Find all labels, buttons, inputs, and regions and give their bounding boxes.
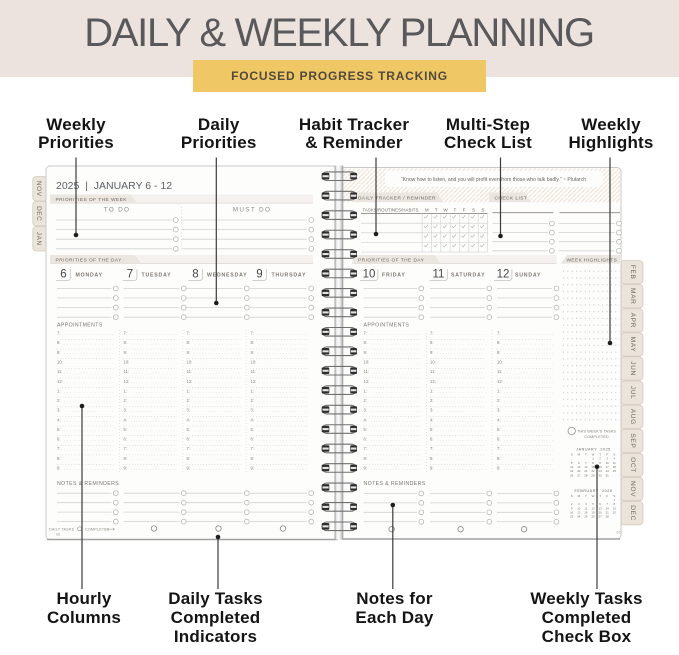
svg-text:DEC: DEC: [629, 505, 636, 521]
svg-text:2:: 2:: [251, 398, 255, 403]
svg-text:24: 24: [577, 515, 581, 519]
svg-text:3:: 3:: [124, 408, 128, 413]
svg-text:8:: 8:: [430, 456, 434, 461]
svg-text:1:: 1:: [57, 388, 61, 393]
svg-text:7:: 7:: [57, 446, 61, 451]
svg-text:9:: 9:: [251, 465, 255, 470]
svg-text:NOV: NOV: [35, 181, 42, 197]
svg-text:8:: 8:: [497, 456, 501, 461]
svg-text:AUG: AUG: [629, 409, 636, 425]
svg-text:12:: 12:: [57, 379, 63, 384]
svg-text:APPOINTMENTS: APPOINTMENTS: [57, 323, 103, 329]
svg-text:10:: 10:: [124, 359, 130, 364]
svg-text:4:: 4:: [497, 417, 501, 422]
svg-text:SEP: SEP: [629, 433, 636, 448]
svg-text:8: 8: [192, 269, 198, 281]
svg-text:27: 27: [598, 515, 602, 519]
svg-text:25: 25: [584, 515, 588, 519]
svg-text:11: 11: [433, 269, 445, 281]
svg-text:9:: 9:: [124, 465, 128, 470]
svg-text:3:: 3:: [497, 408, 501, 413]
svg-text:DEC: DEC: [35, 206, 42, 221]
svg-text:5:: 5:: [57, 427, 61, 432]
svg-text:7:: 7:: [251, 331, 255, 336]
svg-text:6: 6: [60, 269, 66, 281]
svg-text:3:: 3:: [364, 408, 368, 413]
svg-text:TASKS/ROUTINES/HABITS: TASKS/ROUTINES/HABITS: [363, 208, 419, 213]
svg-text:4:: 4:: [364, 417, 368, 422]
svg-text:JUL: JUL: [629, 386, 636, 400]
svg-text:4:: 4:: [187, 417, 191, 422]
svg-text:6:: 6:: [497, 437, 501, 442]
svg-text:25: 25: [613, 469, 617, 473]
svg-text:2:: 2:: [124, 398, 128, 403]
svg-text:8:: 8:: [364, 456, 368, 461]
svg-text:7:: 7:: [187, 446, 191, 451]
svg-text:12:: 12:: [364, 379, 370, 384]
svg-text:TUESDAY: TUESDAY: [142, 273, 172, 279]
svg-text:28: 28: [584, 473, 588, 477]
svg-text:1:: 1:: [364, 388, 368, 393]
svg-text:7:: 7:: [364, 446, 368, 451]
svg-text:8:: 8:: [57, 340, 61, 345]
svg-text:7:: 7:: [57, 331, 61, 336]
svg-text:9:: 9:: [497, 350, 501, 355]
svg-text:4:: 4:: [57, 417, 61, 422]
svg-text:66: 66: [56, 532, 60, 536]
svg-text:OCT: OCT: [629, 457, 636, 473]
svg-text:W: W: [443, 208, 448, 213]
svg-text:PRIORITIES OF THE DAY: PRIORITIES OF THE DAY: [56, 258, 123, 264]
svg-text:12:: 12:: [497, 379, 503, 384]
svg-text:5:: 5:: [124, 427, 128, 432]
svg-text:9:: 9:: [497, 465, 501, 470]
svg-text:7:: 7:: [430, 446, 434, 451]
svg-text:7:: 7:: [430, 331, 434, 336]
svg-text:F: F: [463, 208, 466, 213]
svg-text:SATURDAY: SATURDAY: [451, 273, 485, 279]
svg-text:8:: 8:: [430, 340, 434, 345]
svg-text:2:: 2:: [430, 398, 434, 403]
svg-text:8:: 8:: [124, 456, 128, 461]
svg-text:6:: 6:: [251, 437, 255, 442]
svg-text:7:: 7:: [124, 446, 128, 451]
svg-text:7:: 7:: [187, 331, 191, 336]
svg-text:23: 23: [570, 515, 574, 519]
svg-text:9:: 9:: [430, 350, 434, 355]
svg-text:10:: 10:: [497, 359, 503, 364]
svg-text:9:: 9:: [57, 465, 61, 470]
svg-text:4:: 4:: [124, 417, 128, 422]
svg-text:MONDAY: MONDAY: [76, 273, 103, 279]
svg-text:FRIDAY: FRIDAY: [382, 273, 406, 279]
svg-text:10:: 10:: [364, 359, 370, 364]
svg-text:2:: 2:: [497, 398, 501, 403]
svg-text:JANUARY 2025: JANUARY 2025: [576, 447, 611, 451]
svg-text:MUST DO: MUST DO: [233, 207, 271, 214]
svg-text:12:: 12:: [124, 379, 130, 384]
svg-text:10:: 10:: [187, 359, 193, 364]
svg-text:3:: 3:: [57, 408, 61, 413]
svg-text:10: 10: [363, 269, 376, 281]
svg-text:11:: 11:: [57, 369, 63, 374]
svg-text:27: 27: [577, 473, 581, 477]
svg-text:S: S: [571, 494, 573, 498]
svg-text:THIS WEEK'S TASKS: THIS WEEK'S TASKS: [577, 429, 616, 433]
svg-text:1:: 1:: [430, 388, 434, 393]
svg-text:1:: 1:: [187, 388, 191, 393]
svg-text:28: 28: [606, 515, 610, 519]
svg-text:26: 26: [591, 515, 595, 519]
svg-text:8:: 8:: [187, 456, 191, 461]
svg-text:NOV: NOV: [629, 481, 636, 497]
svg-text:8:: 8:: [497, 340, 501, 345]
svg-text:7:: 7:: [497, 331, 501, 336]
svg-text:30: 30: [598, 473, 602, 477]
svg-text:11:: 11:: [124, 369, 130, 374]
svg-text:11:: 11:: [430, 369, 436, 374]
svg-text:8:: 8:: [364, 340, 368, 345]
svg-text:12: 12: [497, 269, 510, 281]
svg-text:T: T: [585, 494, 587, 498]
svg-text:22: 22: [613, 511, 617, 515]
svg-text:NOTES & REMINDERS: NOTES & REMINDERS: [57, 481, 119, 487]
svg-text:11:: 11:: [497, 369, 503, 374]
svg-text:FEBRUARY 2025: FEBRUARY 2025: [575, 489, 613, 493]
svg-text:12:: 12:: [251, 379, 257, 384]
svg-text:7:: 7:: [251, 446, 255, 451]
svg-text:S: S: [472, 208, 475, 213]
svg-text:9:: 9:: [187, 350, 191, 355]
svg-text:NOTES & REMINDERS: NOTES & REMINDERS: [364, 481, 426, 487]
svg-text:9:: 9:: [364, 465, 368, 470]
svg-text:10:: 10:: [57, 359, 63, 364]
svg-text:7:: 7:: [124, 331, 128, 336]
svg-text:9:: 9:: [430, 465, 434, 470]
svg-text:PRIORITIES OF THE WEEK: PRIORITIES OF THE WEEK: [56, 197, 128, 203]
svg-text:CHECK LIST: CHECK LIST: [495, 196, 528, 202]
svg-text:2:: 2:: [57, 398, 61, 403]
svg-text:5:: 5:: [430, 427, 434, 432]
svg-text:1:: 1:: [124, 388, 128, 393]
svg-text:11:: 11:: [251, 369, 257, 374]
svg-text:JUN: JUN: [629, 361, 636, 376]
svg-text:6:: 6:: [364, 437, 368, 442]
svg-text:11:: 11:: [364, 369, 370, 374]
svg-text:T: T: [453, 208, 456, 213]
svg-text:FEB: FEB: [629, 265, 636, 280]
svg-text:8:: 8:: [251, 340, 255, 345]
svg-text:9:: 9:: [57, 350, 61, 355]
svg-text:5:: 5:: [187, 427, 191, 432]
svg-text:9:: 9:: [187, 465, 191, 470]
svg-text:T: T: [435, 208, 438, 213]
svg-text:7: 7: [127, 269, 133, 281]
svg-text:T: T: [585, 453, 587, 457]
svg-text:8:: 8:: [124, 340, 128, 345]
svg-text:JAN: JAN: [35, 232, 42, 246]
svg-text:8:: 8:: [187, 340, 191, 345]
svg-text:8:: 8:: [57, 456, 61, 461]
svg-text:6:: 6:: [57, 437, 61, 442]
svg-text:6:: 6:: [430, 437, 434, 442]
svg-text:8:: 8:: [251, 456, 255, 461]
svg-text:9:: 9:: [251, 350, 255, 355]
svg-text:26: 26: [570, 473, 574, 477]
svg-text:1:: 1:: [497, 388, 501, 393]
svg-text:7:: 7:: [497, 446, 501, 451]
svg-text:DAILY TASKS: DAILY TASKS: [49, 527, 75, 531]
svg-text:5:: 5:: [497, 427, 501, 432]
svg-text:THURSDAY: THURSDAY: [272, 273, 307, 279]
svg-text:2025 | JANUARY 6 - 12: 2025 | JANUARY 6 - 12: [56, 180, 172, 192]
svg-text:6:: 6:: [187, 437, 191, 442]
svg-text:APR: APR: [629, 313, 636, 328]
svg-text:2:: 2:: [364, 398, 368, 403]
svg-text:MAY: MAY: [629, 337, 636, 353]
svg-text:1:: 1:: [251, 388, 255, 393]
svg-text:S: S: [481, 208, 484, 213]
svg-text:4:: 4:: [251, 417, 255, 422]
svg-text:11:: 11:: [187, 369, 193, 374]
svg-text:5:: 5:: [251, 427, 255, 432]
svg-text:3:: 3:: [187, 408, 191, 413]
svg-text:6:: 6:: [124, 437, 128, 442]
svg-text:2:: 2:: [187, 398, 191, 403]
svg-text:T: T: [599, 494, 601, 498]
svg-text:WEDNESDAY: WEDNESDAY: [207, 273, 247, 279]
svg-text:MAR: MAR: [629, 288, 636, 304]
svg-text:9:: 9:: [124, 350, 128, 355]
svg-text:DAILY TRACKER / REMINDER: DAILY TRACKER / REMINDER: [358, 196, 436, 202]
svg-text:S: S: [571, 453, 573, 457]
svg-text:F: F: [606, 494, 608, 498]
svg-text:9:: 9:: [364, 350, 368, 355]
svg-text:29: 29: [591, 473, 595, 477]
svg-text:31: 31: [606, 473, 610, 477]
svg-text:12:: 12:: [187, 379, 193, 384]
svg-text:SUNDAY: SUNDAY: [515, 273, 541, 279]
svg-text:10:: 10:: [430, 359, 436, 364]
svg-text:3:: 3:: [430, 408, 434, 413]
svg-text:12:: 12:: [430, 379, 436, 384]
svg-text:4:: 4:: [430, 417, 434, 422]
svg-text:COMPLETED: COMPLETED: [584, 435, 609, 439]
svg-text:3:: 3:: [251, 408, 255, 413]
svg-text:5:: 5:: [364, 427, 368, 432]
svg-text:9: 9: [256, 269, 262, 281]
svg-text:“Know how to listen, and you w: “Know how to listen, and you will profit…: [401, 177, 586, 183]
svg-text:TO DO: TO DO: [104, 207, 131, 214]
svg-text:APPOINTMENTS: APPOINTMENTS: [364, 323, 410, 329]
svg-text:7:: 7:: [364, 331, 368, 336]
svg-text:W: W: [592, 494, 595, 498]
svg-text:10:: 10:: [251, 359, 257, 364]
svg-text:M: M: [425, 208, 429, 213]
svg-text:67: 67: [617, 531, 621, 535]
svg-text:PRIORITIES OF THE DAY: PRIORITIES OF THE DAY: [358, 258, 425, 264]
